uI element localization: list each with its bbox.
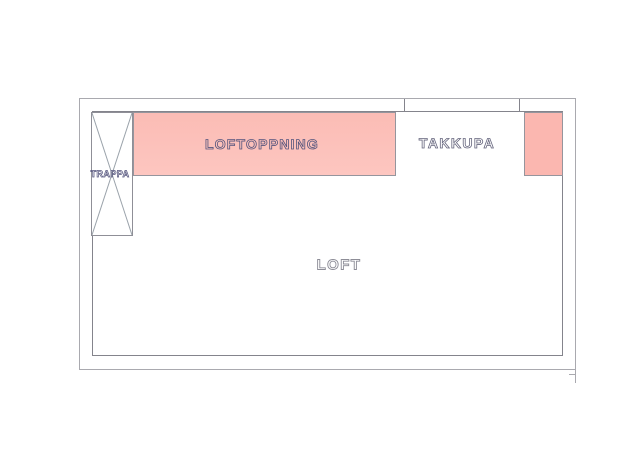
- corner-tick-mark: [569, 374, 576, 375]
- top-wall-divider-left: [404, 99, 405, 111]
- floor-plan-canvas: TRAPPA LOFTOPPNING TAKKUPA LOFT: [0, 0, 640, 457]
- loftoppning-label: LOFTOPPNING: [205, 136, 319, 152]
- corner-extension-line: [575, 369, 576, 383]
- trappa-label: TRAPPA: [91, 169, 130, 179]
- loft-label: LOFT: [317, 257, 362, 274]
- top-wall-divider-right: [519, 99, 520, 111]
- takkupa-highlight-area: [524, 112, 563, 176]
- takkupa-label: TAKKUPA: [419, 135, 495, 151]
